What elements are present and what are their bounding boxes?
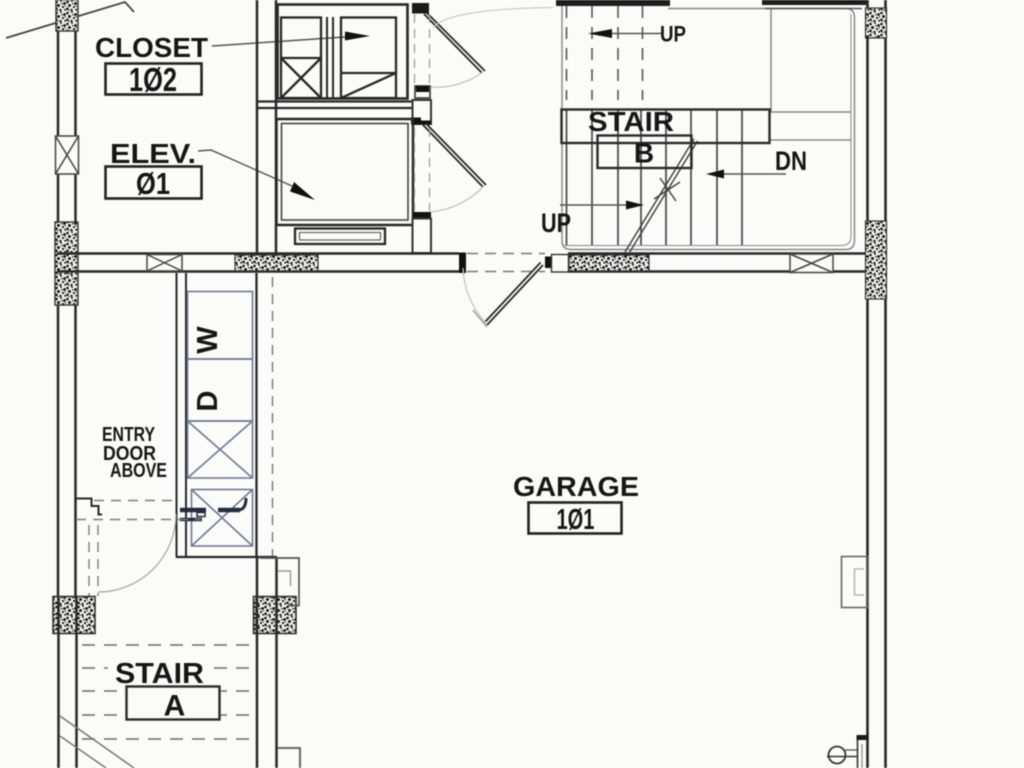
svg-text:GARAGE: GARAGE: [513, 471, 639, 502]
svg-text:UP: UP: [541, 208, 571, 238]
svg-text:STAIR: STAIR: [588, 106, 674, 137]
svg-text:Ø1: Ø1: [136, 166, 170, 201]
svg-text:D: D: [192, 391, 224, 412]
svg-text:ABOVE: ABOVE: [110, 460, 167, 482]
svg-text:B: B: [634, 138, 654, 169]
svg-text:ELEV.: ELEV.: [110, 138, 196, 169]
svg-text:1Ø2: 1Ø2: [129, 61, 177, 98]
svg-text:1Ø1: 1Ø1: [557, 504, 595, 536]
svg-text:UP: UP: [660, 22, 686, 47]
svg-text:DN: DN: [775, 146, 807, 176]
svg-text:CLOSET: CLOSET: [95, 32, 208, 63]
svg-text:STAIR: STAIR: [115, 658, 204, 690]
svg-text:A: A: [164, 690, 186, 723]
svg-text:W: W: [192, 326, 224, 354]
